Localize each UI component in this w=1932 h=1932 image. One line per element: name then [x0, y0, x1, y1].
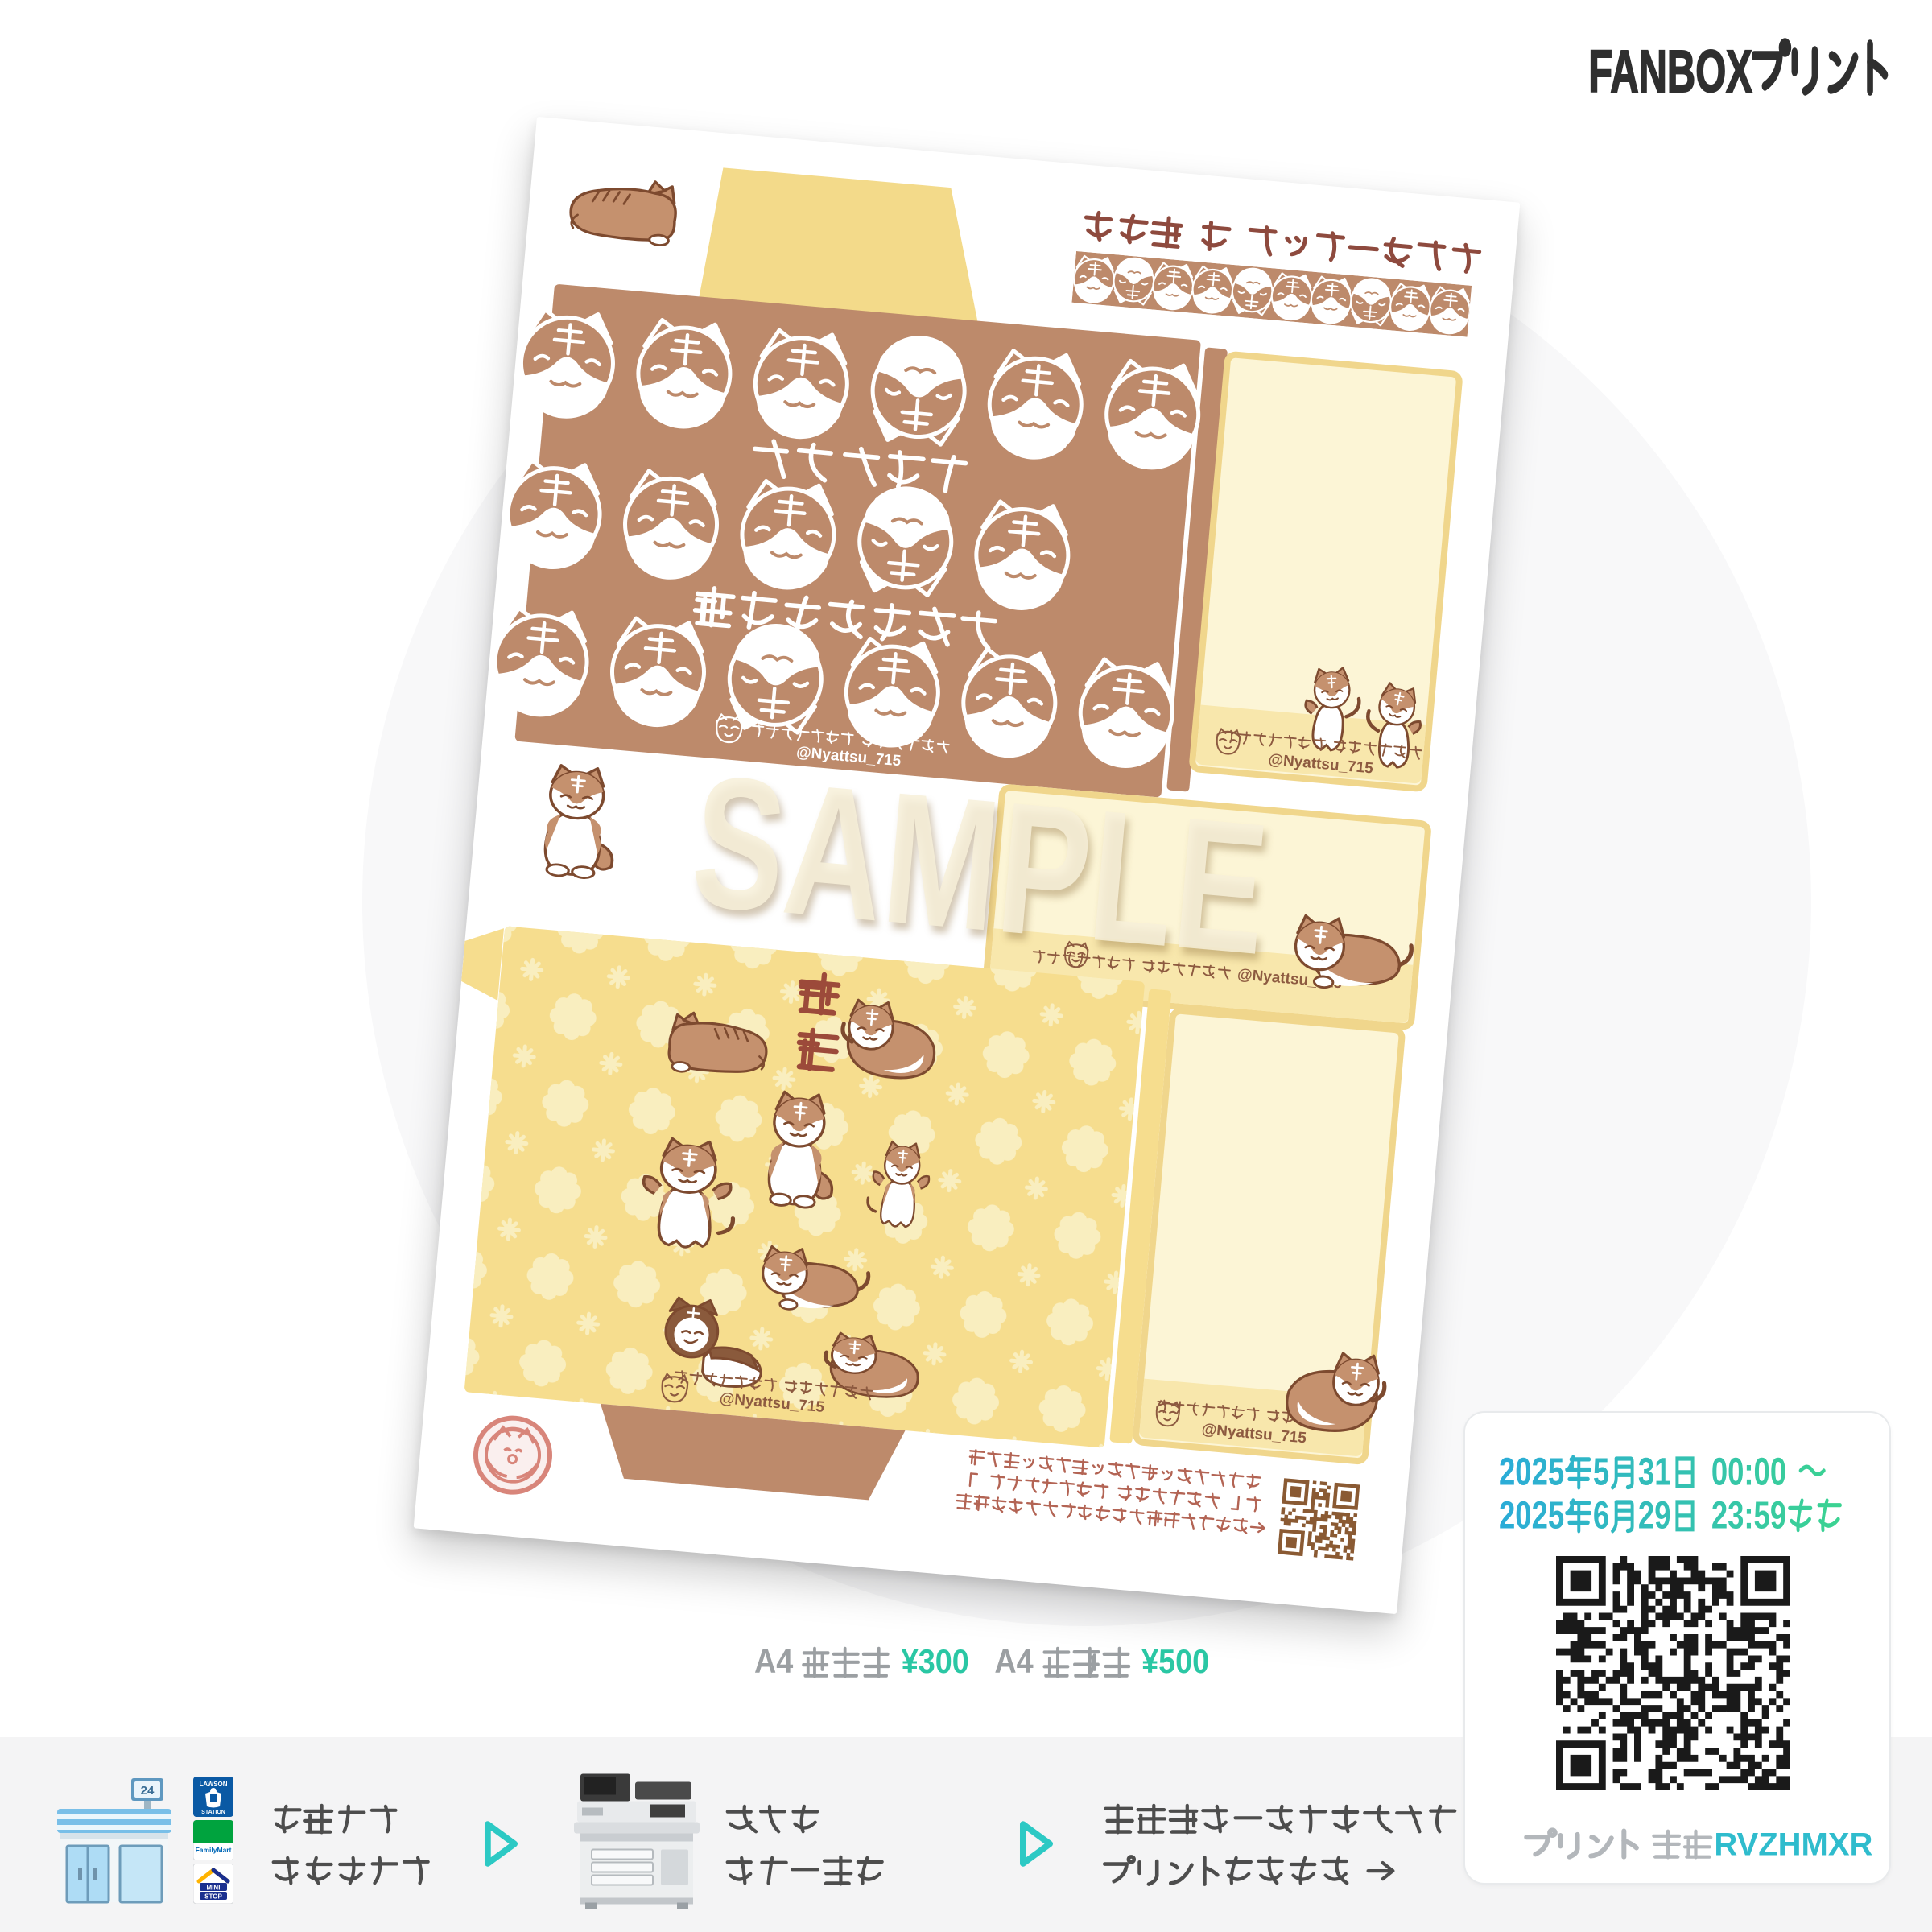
svg-text:5: 5	[1593, 1450, 1609, 1493]
svg-text:31: 31	[1638, 1450, 1671, 1493]
svg-text:RVZHMXR: RVZHMXR	[1714, 1827, 1872, 1862]
svg-text:6: 6	[1593, 1493, 1609, 1537]
svg-text:2025: 2025	[1499, 1493, 1564, 1537]
svg-text:29: 29	[1638, 1493, 1671, 1537]
svg-text:2025: 2025	[1499, 1450, 1564, 1493]
svg-text:23:59: 23:59	[1711, 1493, 1786, 1537]
svg-text:00:00: 00:00	[1711, 1450, 1786, 1493]
